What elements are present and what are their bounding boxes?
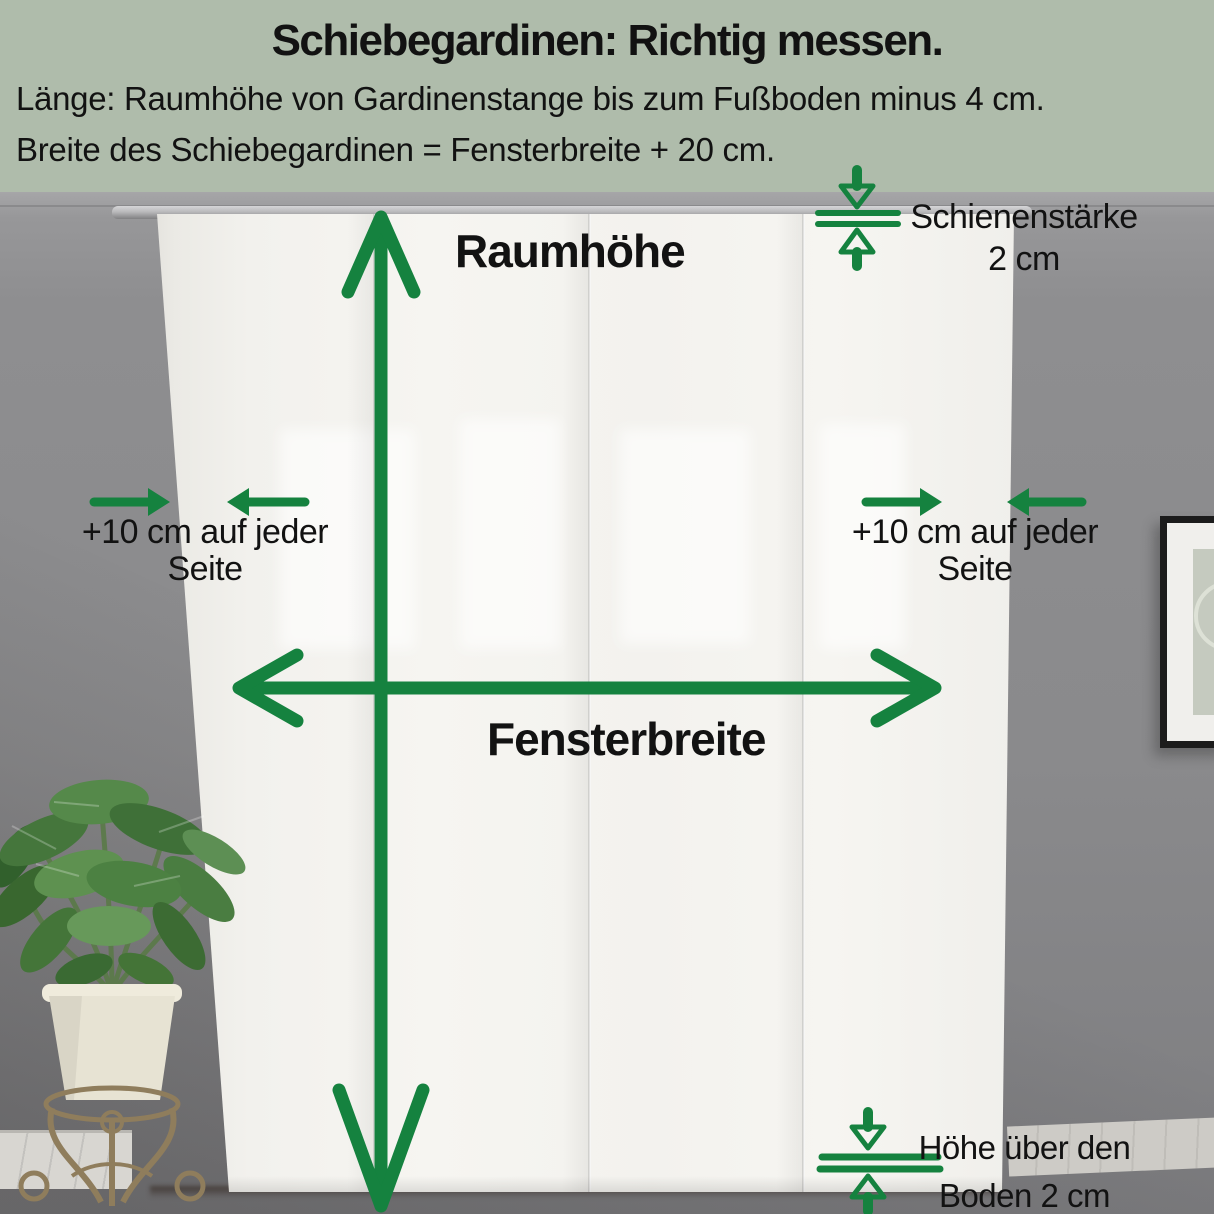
- side-allowance-right-line2: Seite: [830, 551, 1120, 588]
- panel-seam: [373, 214, 376, 1192]
- window-width-label: Fensterbreite: [487, 712, 765, 766]
- header: Schiebegardinen: Richtig messen. Länge: …: [0, 0, 1214, 192]
- room-height-label: Raumhöhe: [455, 224, 685, 278]
- window-reflection: [460, 419, 560, 649]
- rail-thickness-label: Schienenstärke 2 cm: [898, 196, 1150, 280]
- side-allowance-right-line1: +10 cm auf jeder: [830, 514, 1120, 551]
- panel-shade: [347, 214, 373, 1192]
- window-reflection: [620, 429, 750, 644]
- panel-shade: [776, 214, 802, 1192]
- circle-artwork-icon: [1194, 581, 1214, 651]
- floor-clearance-line2: Boden 2 cm: [902, 1172, 1147, 1214]
- potted-plant-icon: [0, 744, 246, 1214]
- room-photo: [0, 192, 1214, 1214]
- width-instruction: Breite des Schiebegardinen = Fensterbrei…: [16, 131, 775, 169]
- side-allowance-left-line1: +10 cm auf jeder: [60, 514, 350, 551]
- picture-frame: [1160, 516, 1214, 748]
- side-allowance-label-right: +10 cm auf jeder Seite: [830, 514, 1120, 588]
- rail-thickness-line2: 2 cm: [898, 238, 1150, 280]
- panel-seam: [802, 214, 805, 1192]
- curtain-panels: [130, 214, 1016, 1192]
- page-title: Schiebegardinen: Richtig messen.: [0, 16, 1214, 66]
- picture-mat: [1167, 523, 1214, 741]
- curtain-hem: [130, 1176, 1016, 1192]
- side-allowance-left-line2: Seite: [60, 551, 350, 588]
- panel-shade: [562, 214, 588, 1192]
- picture-art: [1193, 549, 1214, 715]
- measuring-infographic: Schiebegardinen: Richtig messen. Länge: …: [0, 0, 1214, 1214]
- floor-clearance-label: Höhe über den Boden 2 cm: [902, 1124, 1147, 1214]
- length-instruction: Länge: Raumhöhe von Gardinenstange bis z…: [16, 80, 1045, 118]
- panel-seam: [588, 214, 591, 1192]
- rail-thickness-line1: Schienenstärke: [898, 196, 1150, 238]
- side-allowance-label-left: +10 cm auf jeder Seite: [60, 514, 350, 588]
- floor-clearance-line1: Höhe über den: [902, 1124, 1147, 1172]
